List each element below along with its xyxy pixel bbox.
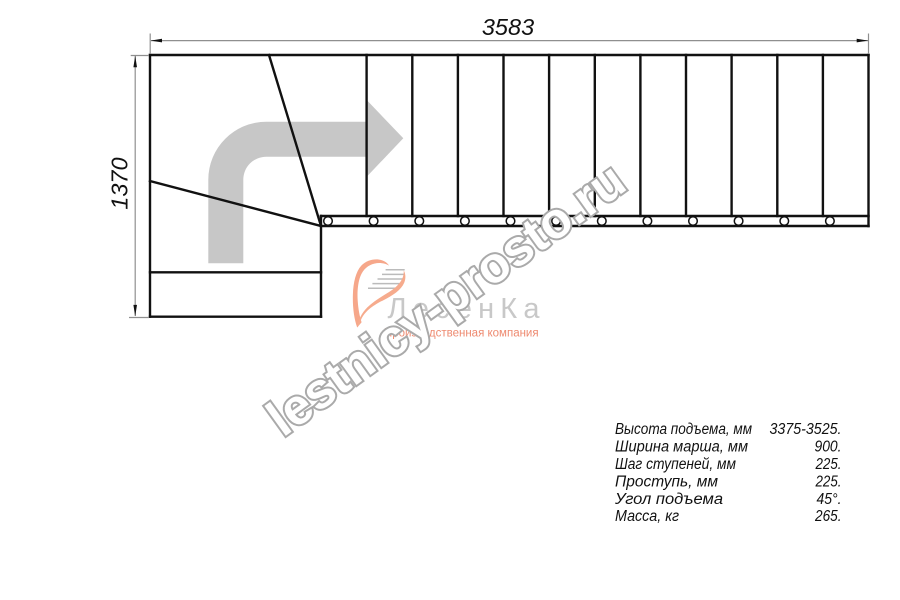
svg-text:Высота подъема, мм: Высота подъема, мм xyxy=(615,421,752,438)
svg-text:3583: 3583 xyxy=(482,14,534,40)
svg-text:225.: 225. xyxy=(815,474,842,491)
svg-text:1370: 1370 xyxy=(107,157,133,209)
svg-text:Шаг ступеней, мм: Шаг ступеней, мм xyxy=(615,456,736,473)
svg-text:Проступь, мм: Проступь, мм xyxy=(615,474,718,491)
svg-text:Ширина марша, мм: Ширина марша, мм xyxy=(615,439,748,456)
svg-text:265.: 265. xyxy=(814,508,841,525)
svg-text:3375-3525.: 3375-3525. xyxy=(770,421,842,438)
svg-text:45°.: 45°. xyxy=(817,491,842,508)
svg-text:225.: 225. xyxy=(815,456,842,473)
svg-text:Масса, кг: Масса, кг xyxy=(615,508,679,525)
svg-text:Угол подъема: Угол подъема xyxy=(614,491,723,508)
svg-text:900.: 900. xyxy=(815,439,842,456)
svg-text:lestnicy-prosto.ru: lestnicy-prosto.ru xyxy=(256,151,635,447)
